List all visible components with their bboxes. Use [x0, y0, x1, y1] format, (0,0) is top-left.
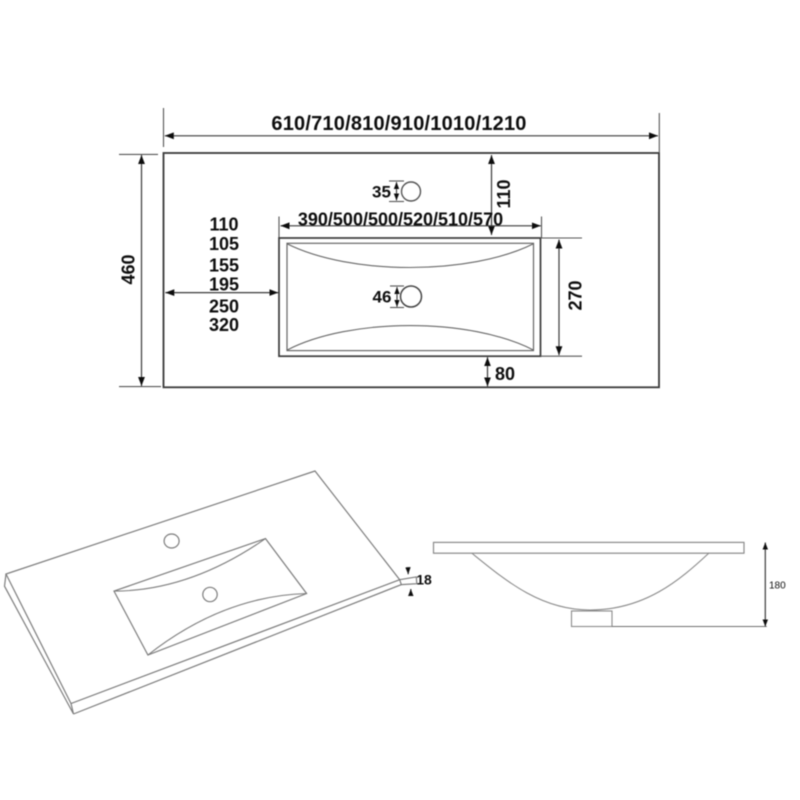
svg-text:46: 46 [373, 288, 392, 307]
svg-text:110: 110 [209, 215, 238, 235]
svg-text:18: 18 [416, 572, 432, 588]
svg-text:180: 180 [769, 581, 786, 592]
svg-text:80: 80 [495, 364, 515, 384]
svg-text:320: 320 [209, 315, 239, 335]
svg-text:270: 270 [566, 280, 586, 310]
svg-text:610/710/810/910/1010/1210: 610/710/810/910/1010/1210 [271, 113, 526, 135]
svg-text:390/500/500/520/510/570: 390/500/500/520/510/570 [298, 210, 503, 230]
svg-text:195: 195 [209, 275, 239, 295]
svg-text:460: 460 [119, 254, 139, 284]
svg-text:155: 155 [209, 256, 239, 276]
svg-text:35: 35 [372, 183, 391, 202]
svg-text:105: 105 [209, 234, 239, 254]
svg-text:110: 110 [494, 179, 514, 208]
svg-text:250: 250 [209, 297, 239, 317]
